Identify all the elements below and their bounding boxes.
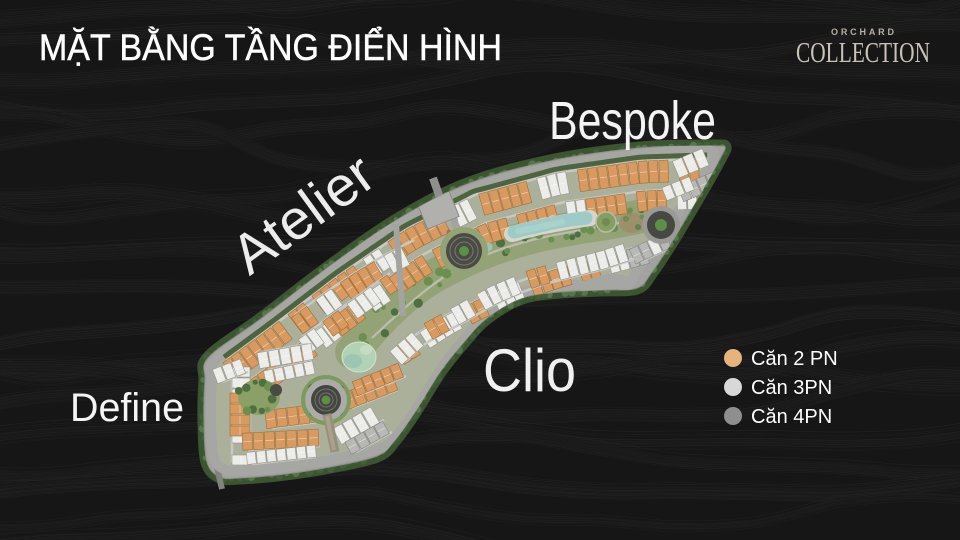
svg-text:Define: Define [70,386,184,430]
svg-text:Bespoke: Bespoke [549,91,716,151]
svg-text:Căn 3PN: Căn 3PN [751,377,832,399]
svg-text:Căn 4PN: Căn 4PN [751,406,832,428]
svg-text:COLLECTION: COLLECTION [796,37,930,69]
svg-text:MẶT BẰNG TẦNG ĐIỂN HÌNH: MẶT BẰNG TẦNG ĐIỂN HÌNH [39,26,502,68]
svg-text:Clio: Clio [483,337,576,404]
svg-text:Căn 2 PN: Căn 2 PN [751,348,838,370]
